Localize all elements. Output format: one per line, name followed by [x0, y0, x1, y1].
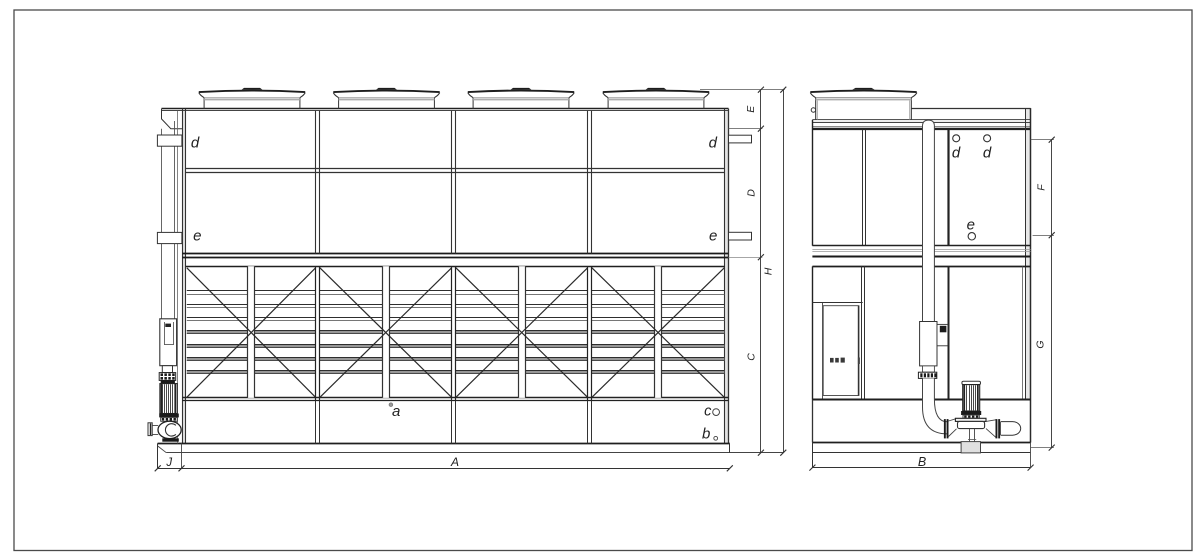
svg-text:d: d [983, 145, 992, 162]
svg-text:A: A [450, 455, 459, 469]
svg-text:E: E [745, 105, 757, 113]
svg-text:a: a [392, 403, 400, 420]
svg-text:G: G [1035, 340, 1047, 348]
svg-text:d: d [191, 135, 200, 152]
svg-text:b: b [702, 425, 710, 442]
svg-text:J: J [165, 457, 172, 469]
svg-text:B: B [918, 455, 926, 469]
svg-text:c: c [704, 404, 712, 420]
svg-text:e: e [709, 228, 717, 245]
svg-text:D: D [746, 189, 758, 197]
svg-text:e: e [967, 217, 975, 234]
svg-text:d: d [709, 134, 718, 151]
svg-text:e: e [193, 228, 201, 245]
svg-text:F: F [1035, 184, 1047, 191]
svg-text:C: C [746, 353, 758, 361]
svg-text:d: d [952, 145, 961, 162]
svg-text:H: H [763, 267, 775, 275]
